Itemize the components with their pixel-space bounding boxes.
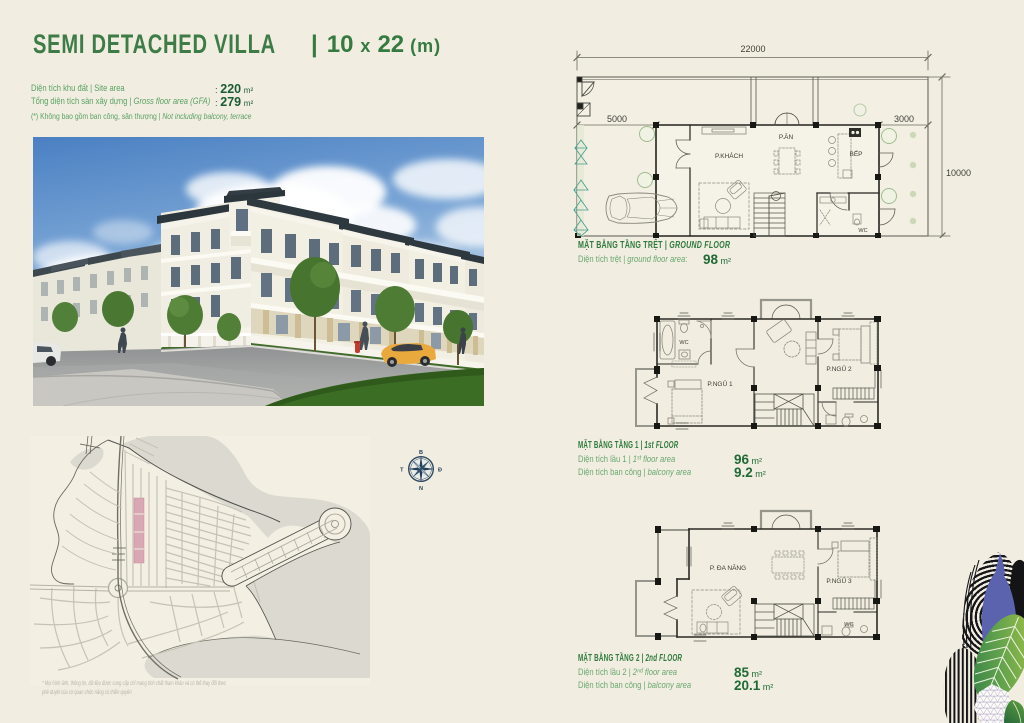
svg-text:5000: 5000 bbox=[607, 114, 627, 124]
svg-text:22000: 22000 bbox=[740, 44, 765, 54]
svg-text:WC: WC bbox=[679, 340, 688, 346]
svg-text:Đ: Đ bbox=[438, 468, 442, 474]
svg-text:P. ĐA NĂNG: P. ĐA NĂNG bbox=[710, 563, 746, 572]
svg-text:P.ĂN: P.ĂN bbox=[779, 132, 794, 141]
svg-text:T: T bbox=[400, 468, 404, 474]
svg-text:N: N bbox=[419, 486, 423, 491]
svg-text:P.NGỦ 2: P.NGỦ 2 bbox=[826, 364, 852, 373]
svg-text:B: B bbox=[419, 450, 423, 456]
svg-text:P.NGỦ 1: P.NGỦ 1 bbox=[707, 379, 733, 388]
svg-text:3000: 3000 bbox=[894, 114, 914, 124]
svg-text:WC: WC bbox=[858, 228, 867, 234]
svg-text:P.KHÁCH: P.KHÁCH bbox=[715, 151, 743, 160]
svg-text:10000: 10000 bbox=[946, 168, 971, 178]
